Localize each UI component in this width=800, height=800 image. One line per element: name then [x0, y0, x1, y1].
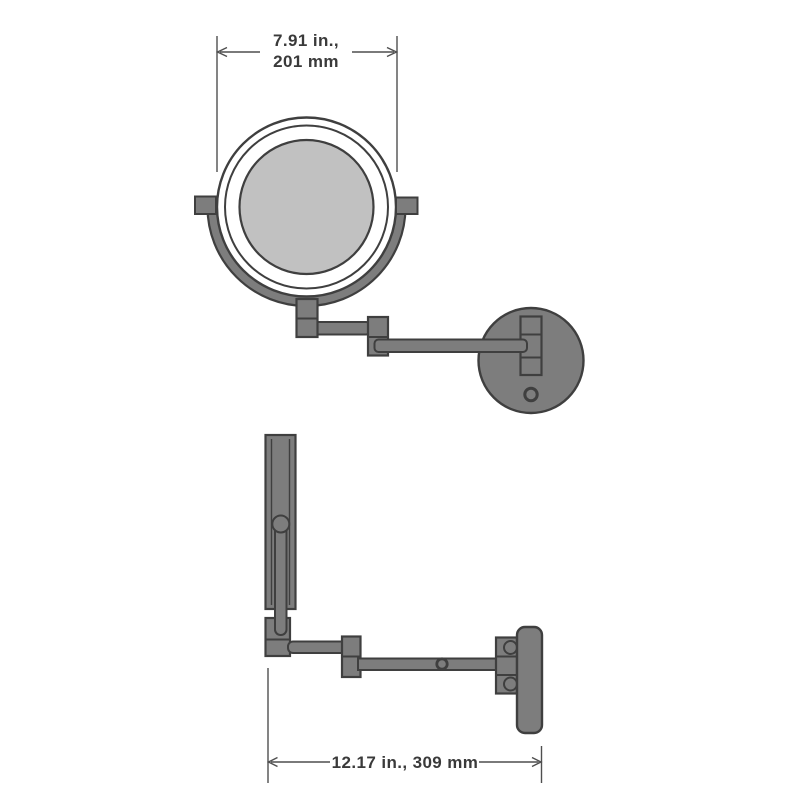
front-dimension-label-line2: 201 mm	[273, 52, 339, 71]
hinge-knuckle-bottom	[504, 678, 517, 691]
front-dimension-label-line1: 7.91 in.,	[273, 31, 339, 50]
side-view: 12.17 in., 309 mm	[266, 435, 543, 783]
mirror-glass	[240, 140, 374, 274]
pivot-block-right	[396, 198, 418, 215]
screw-hole-icon	[525, 388, 537, 400]
diagram-page: 7.91 in., 201 mm	[0, 0, 800, 800]
arm-screw-icon	[437, 659, 447, 669]
arm-segment-1-front	[312, 322, 372, 335]
arm-segment-2-side	[358, 659, 498, 671]
arm-segment-2-front	[375, 340, 528, 353]
yoke-pivot-side	[272, 516, 289, 533]
side-dimension-label: 12.17 in., 309 mm	[332, 753, 479, 772]
yoke-arm-side	[275, 518, 287, 635]
arm-segment-1-side	[288, 642, 346, 654]
hinge-knuckle-top	[504, 641, 517, 654]
technical-drawing-canvas: 7.91 in., 201 mm	[0, 0, 800, 800]
front-view: 7.91 in., 201 mm	[195, 31, 584, 413]
pivot-block-left	[195, 197, 216, 215]
wall-plate-side	[517, 627, 542, 733]
